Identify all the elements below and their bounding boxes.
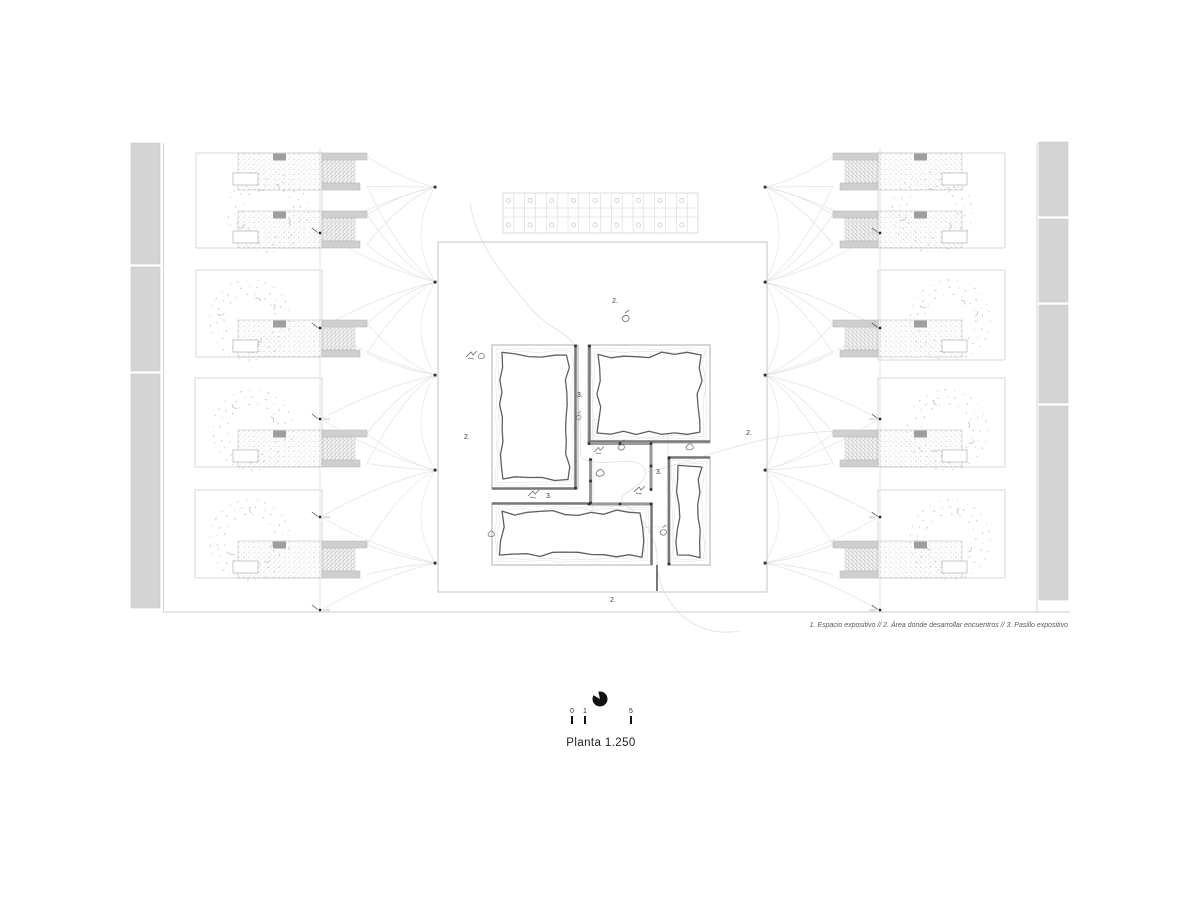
fan-arc: [765, 375, 833, 464]
wall-column: [574, 487, 577, 490]
drawing-title: Planta 1.250: [566, 737, 635, 749]
pergola-post: [571, 223, 575, 227]
fan-arc: [367, 375, 435, 464]
fan-arc: [765, 375, 833, 434]
pond-water-edge: [597, 352, 702, 434]
corridor-label: 3.: [577, 392, 583, 399]
wall-column: [589, 480, 592, 483]
pergola-post: [571, 198, 575, 202]
fan-arc: [421, 375, 435, 470]
marker-tag: [323, 516, 330, 518]
pergola-post: [615, 223, 619, 227]
fan-arc: [765, 215, 833, 283]
entry-marker: [319, 609, 321, 611]
marker-tag: [323, 609, 330, 611]
pergola-post: [658, 223, 662, 227]
marker-tag: [323, 327, 330, 329]
fan-arc: [367, 470, 435, 545]
fan-arc: [321, 375, 435, 419]
pergola-post: [636, 198, 640, 202]
entry-marker: [319, 327, 321, 329]
fan-arc: [421, 470, 435, 563]
fan-arc: [765, 470, 833, 545]
marker-arrow: [872, 605, 878, 610]
fan-arc: [421, 187, 435, 282]
fan-arc: [765, 187, 833, 245]
marker-arrow: [872, 512, 878, 517]
entry-marker: [879, 516, 881, 518]
marker-tag: [869, 327, 876, 329]
entry-marker: [879, 232, 881, 234]
fan-arc: [421, 282, 435, 375]
pergola-post: [658, 198, 662, 202]
column-dot: [434, 186, 437, 189]
entry-marker: [319, 232, 321, 234]
entry-marker: [879, 418, 881, 420]
fan-arc: [765, 187, 833, 188]
central-room-walls: [588, 443, 652, 504]
wall-column: [588, 442, 591, 445]
pergola-post: [636, 223, 640, 227]
pergola-grid: [503, 193, 698, 233]
column-dot: [434, 469, 437, 472]
fan-arc: [367, 354, 435, 376]
area-label: 2.: [612, 298, 618, 305]
wall-column: [650, 503, 653, 506]
marker-tag: [323, 418, 330, 420]
fan-arc: [367, 187, 435, 188]
marker-arrow: [312, 605, 318, 610]
wall-column: [589, 458, 592, 461]
site-plan-drawing: 2. 2. 2. 2. 3. 3. 3. 1. Espacio expositi…: [0, 0, 1200, 900]
column-dot: [434, 281, 437, 284]
marker-tag: [323, 232, 330, 234]
wall-column: [588, 345, 591, 348]
fan-arc: [321, 470, 435, 517]
column-dot: [764, 186, 767, 189]
wall-column: [650, 465, 653, 468]
pergola-post: [593, 198, 597, 202]
pergola-post: [615, 198, 619, 202]
scale-bar: 0 1 5: [570, 708, 633, 724]
column-dot: [434, 562, 437, 565]
entry-marker: [879, 327, 881, 329]
fan-arc: [765, 282, 833, 354]
area-label: 2.: [610, 597, 616, 604]
fan-arc: [765, 434, 833, 471]
fan-arc: [367, 282, 435, 354]
marker-tag: [869, 516, 876, 518]
scale-0: 0: [570, 708, 574, 715]
fan-arc: [367, 434, 435, 471]
corridor-label: 3.: [546, 493, 552, 500]
wall-column: [668, 563, 671, 566]
pond-water-edge: [500, 352, 570, 480]
fan-arc: [367, 215, 435, 283]
scale-5: 5: [629, 708, 633, 715]
area-label: 2.: [746, 430, 752, 437]
column-dot: [764, 562, 767, 565]
edge-bars-right: [1039, 142, 1068, 600]
pergola-post: [506, 223, 510, 227]
fan-arc: [367, 187, 435, 245]
wall-column: [589, 502, 592, 505]
fan-arc: [367, 157, 435, 188]
edge-bars-left: [131, 143, 160, 608]
column-dot: [434, 374, 437, 377]
entry-marker: [319, 516, 321, 518]
pergola-post: [680, 198, 684, 202]
fan-arc: [765, 354, 833, 376]
marker-arrow: [872, 414, 878, 419]
marker-arrow: [312, 512, 318, 517]
fan-arc: [765, 375, 879, 419]
pergola-post: [528, 198, 532, 202]
area-label: 2.: [464, 434, 470, 441]
pergola-post: [680, 223, 684, 227]
wall-column: [650, 488, 653, 491]
marker-tag: [869, 609, 876, 611]
wall-column: [668, 457, 671, 460]
scale-1: 1: [583, 708, 587, 715]
pond-water-edge: [676, 465, 702, 557]
pond-water-edge: [500, 510, 644, 557]
fan-arc: [367, 375, 435, 434]
pergola-post: [593, 223, 597, 227]
column-dot: [764, 281, 767, 284]
marker-tag: [869, 418, 876, 420]
garden-ponds: [492, 345, 710, 565]
pergola-post: [550, 198, 554, 202]
entry-marker: [879, 609, 881, 611]
fan-arc: [765, 470, 879, 517]
marker-tag: [869, 232, 876, 234]
pergola-post: [528, 223, 532, 227]
column-dot: [764, 374, 767, 377]
north-arrow-icon: [591, 688, 608, 707]
wall-column: [574, 345, 577, 348]
wall-column: [650, 442, 653, 445]
column-dot: [764, 469, 767, 472]
legend-text: 1. Espacio expositivo // 2. Área donde d…: [810, 620, 1068, 629]
entry-marker: [319, 418, 321, 420]
corridor-label: 3.: [656, 469, 662, 476]
wall-column: [619, 503, 622, 506]
pergola-post: [550, 223, 554, 227]
marker-arrow: [312, 414, 318, 419]
plan-sheet: 2. 2. 2. 2. 3. 3. 3. 1. Espacio expositi…: [0, 0, 1200, 900]
fan-arc: [765, 157, 833, 188]
pergola-post: [506, 198, 510, 202]
